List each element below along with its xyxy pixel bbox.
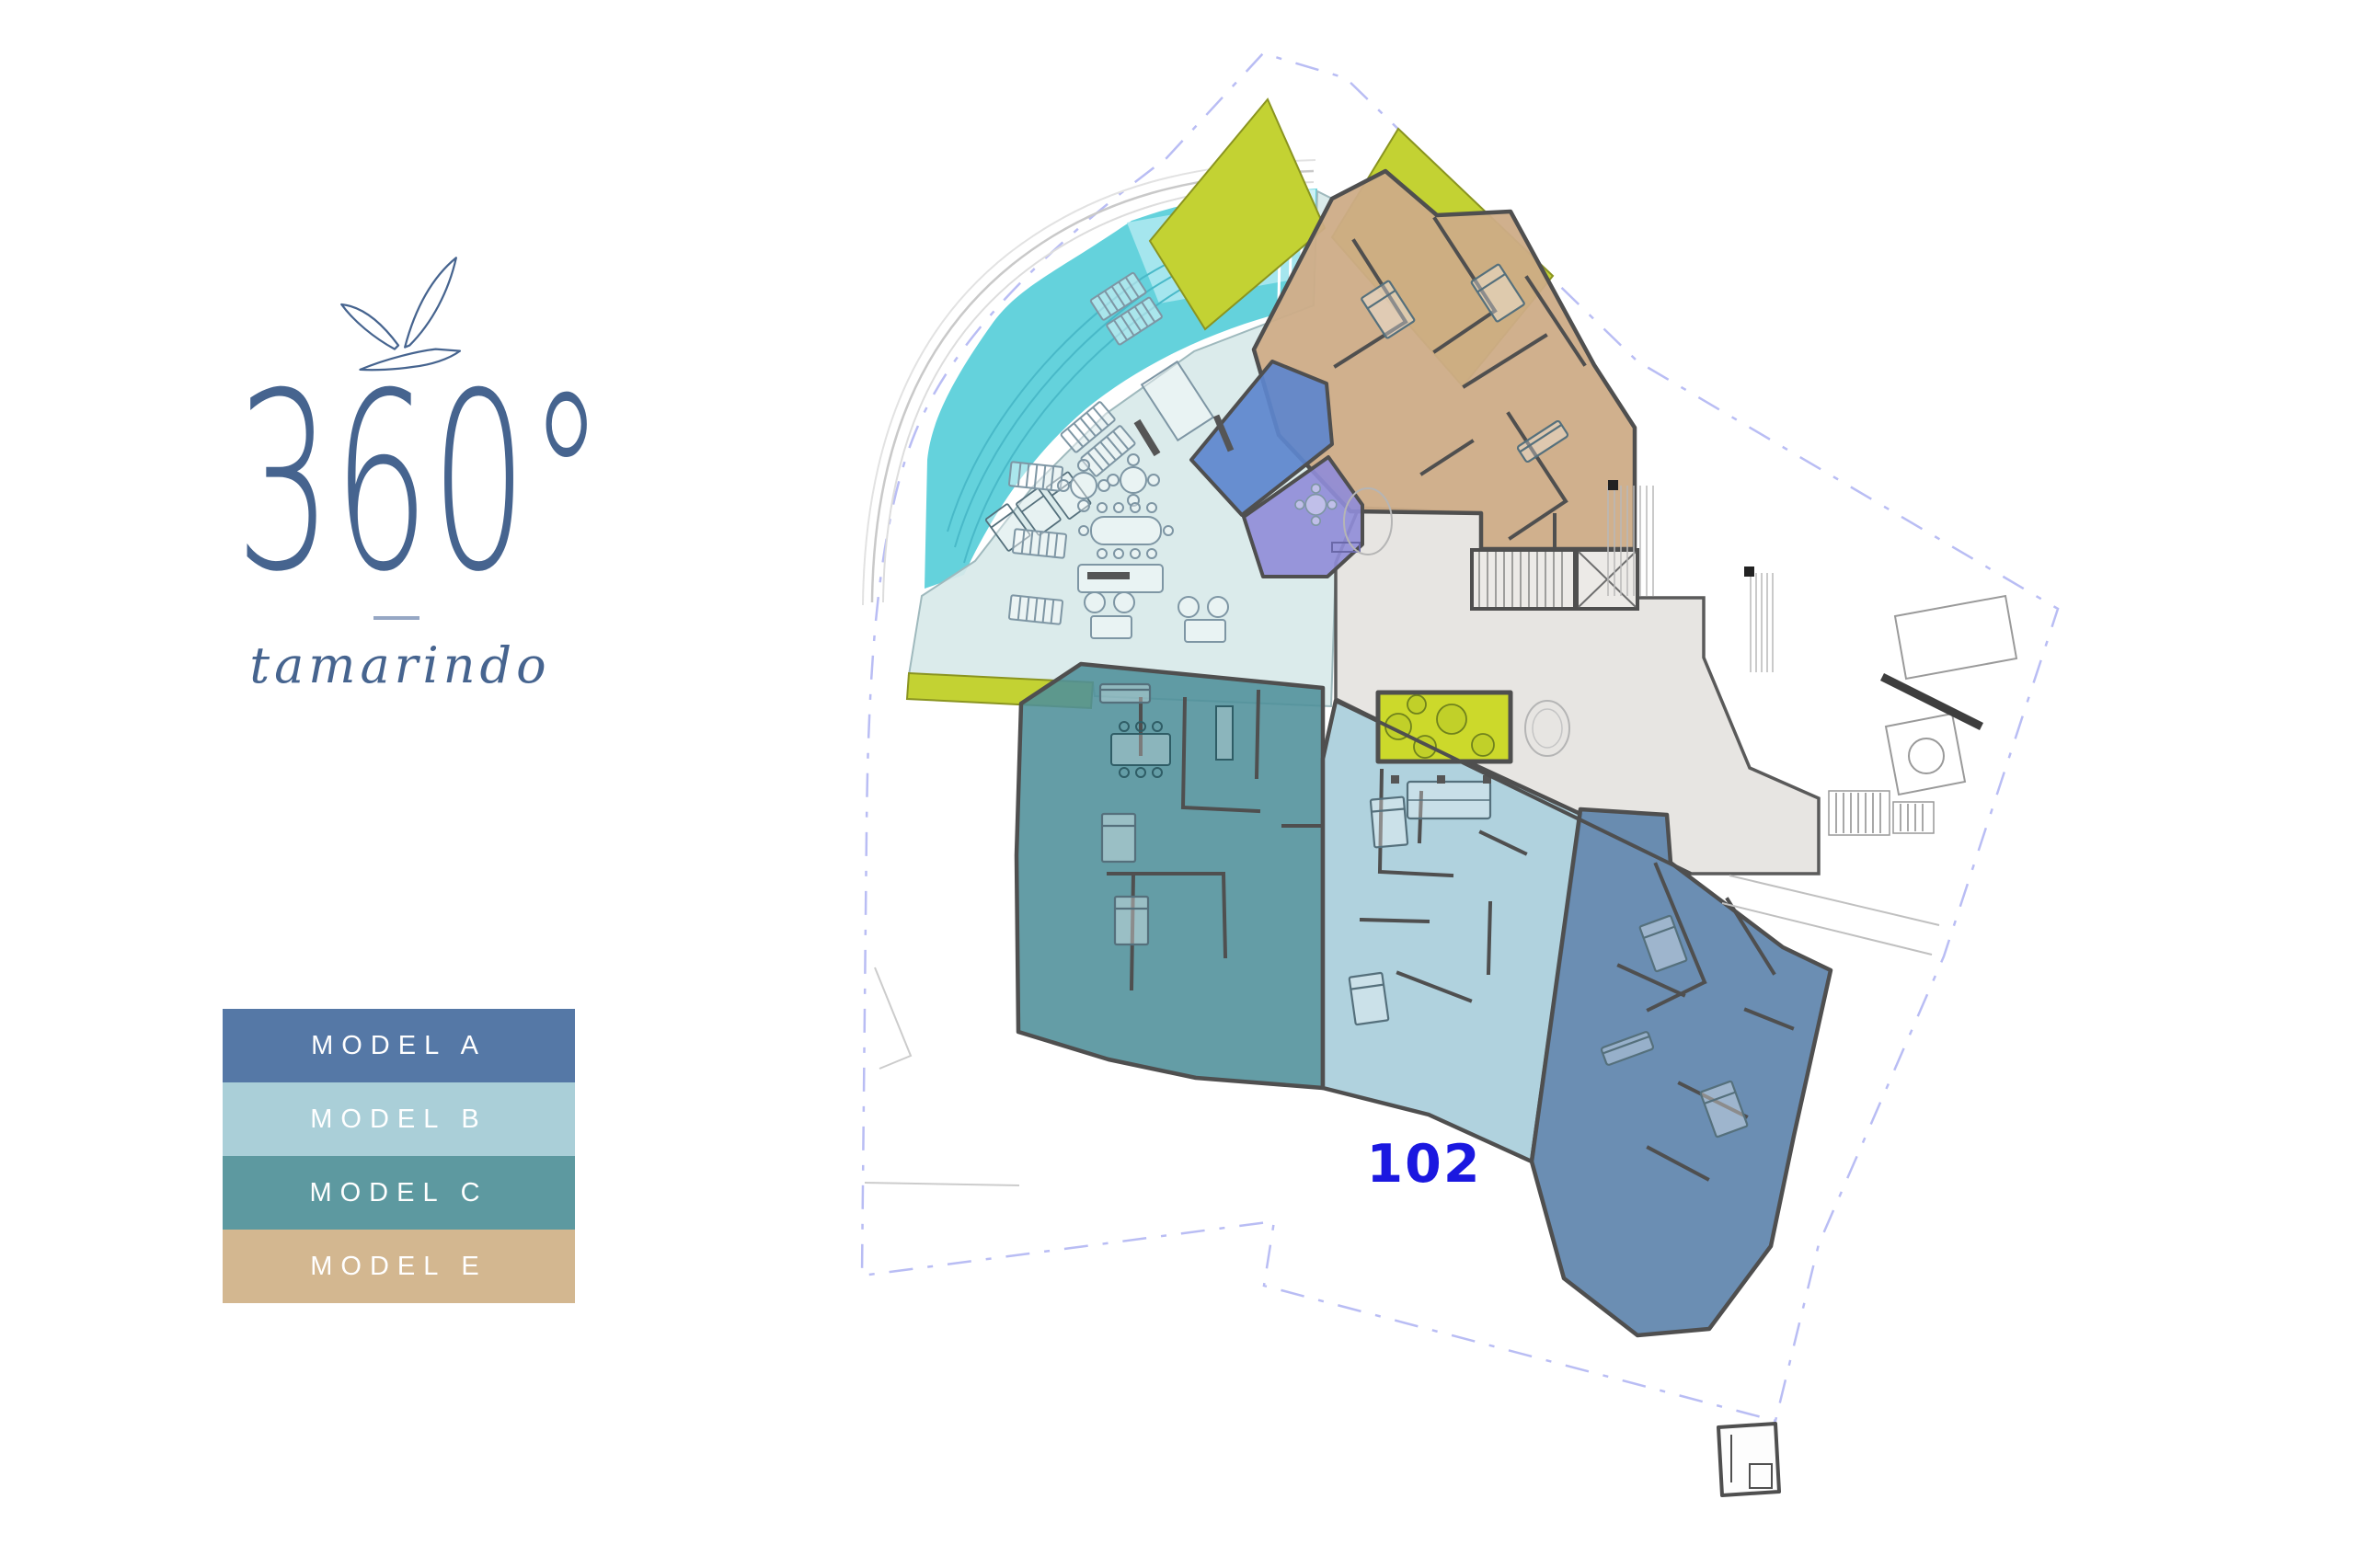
floorplan-svg: 102: [0, 0, 2355, 1568]
unit-102-label[interactable]: 102: [1367, 1134, 1482, 1195]
utility-room: [1718, 1424, 1779, 1495]
floorplan-page: 360° tamarindo MODEL A MODEL B MODEL C M…: [0, 0, 2355, 1568]
exterior-stairs: [1829, 791, 1934, 835]
unit-model-c[interactable]: [1017, 664, 1323, 1088]
deck-counter: [1087, 572, 1130, 579]
